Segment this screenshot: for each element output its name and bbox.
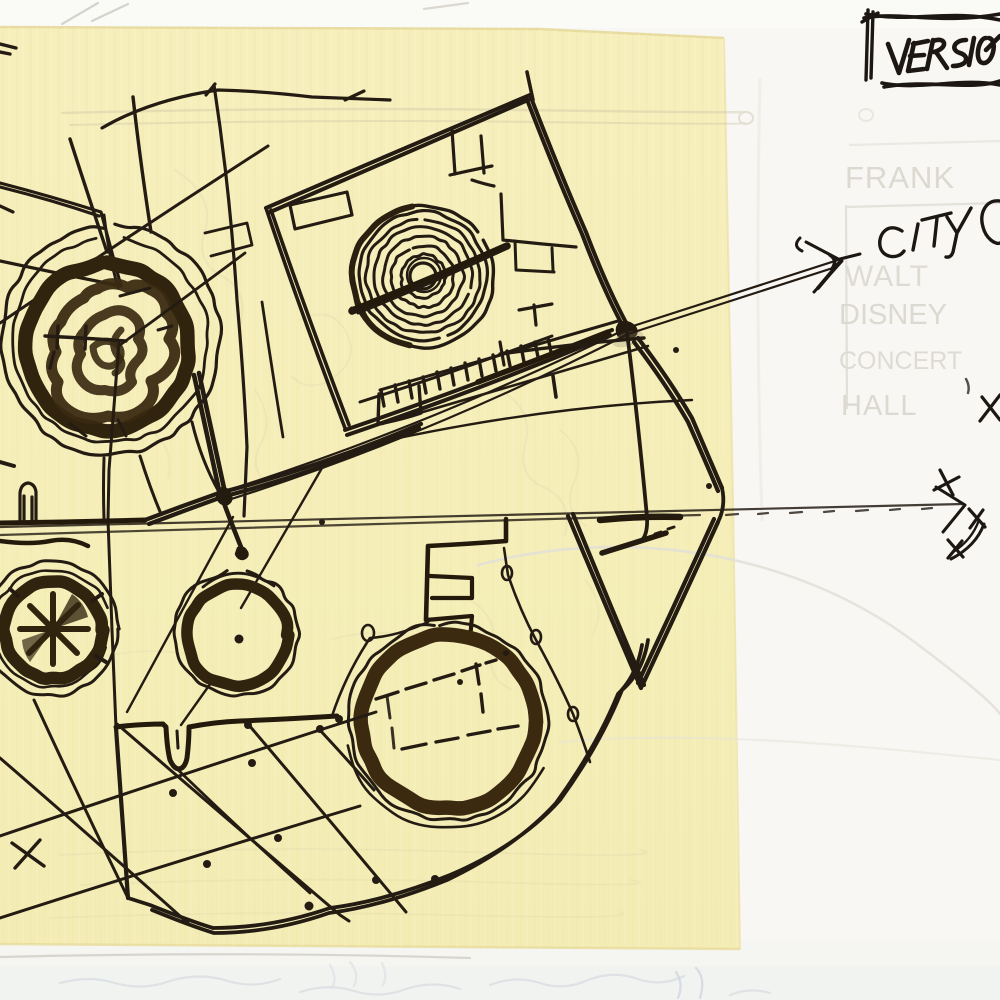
svg-text:HALL: HALL <box>841 390 918 422</box>
svg-text:WALT: WALT <box>845 260 929 293</box>
svg-text:CONCERT: CONCERT <box>839 347 962 375</box>
svg-text:FRANK: FRANK <box>845 160 955 195</box>
svg-text:DISNEY: DISNEY <box>839 299 947 331</box>
